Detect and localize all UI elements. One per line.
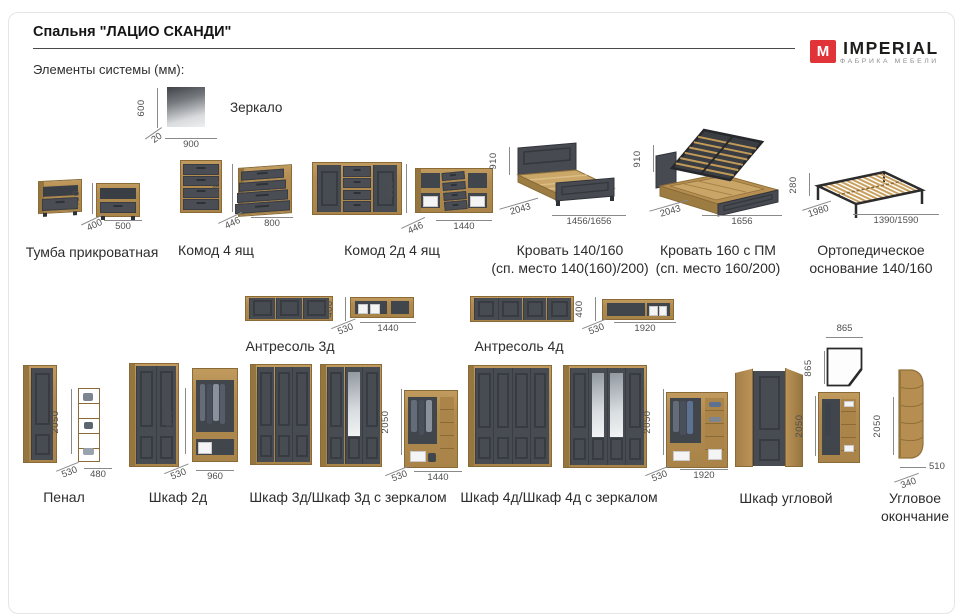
dim-height: 280 [784, 173, 810, 196]
dim-plan-width: 865 [826, 335, 863, 349]
clothes [213, 384, 218, 421]
clothes [825, 403, 831, 436]
dim-height: 2050 [790, 396, 816, 456]
drawer [444, 200, 467, 210]
wardrobe3-open-illustration [404, 390, 458, 468]
storage-box [370, 304, 380, 314]
item-label-line1: Угловое [889, 490, 941, 506]
clothes [200, 384, 205, 421]
niche [607, 303, 646, 317]
imperial-logo-mark-icon: M [810, 40, 836, 63]
item-label: Комод 2д 4 ящ [310, 241, 474, 259]
storage-box [844, 445, 854, 452]
dim-width: 1456/1656 [552, 213, 626, 227]
storage-box [470, 196, 485, 207]
clothes [680, 401, 686, 435]
dim-height: 910 [484, 147, 510, 175]
mirror-door [588, 368, 606, 465]
item-label: Ортопедическое основание 140/160 [788, 241, 954, 277]
corner-end-illustration [898, 369, 924, 459]
dim-height: 2050 [160, 388, 186, 454]
chest4-open-illustration [238, 164, 292, 217]
dim-height: 2050 [376, 389, 402, 455]
shelf-item [83, 448, 94, 454]
door [530, 368, 548, 464]
mirror-illustration [167, 87, 205, 127]
item-label-line2: (сп. место 140(160)/200) [487, 259, 653, 277]
wardrobe4-closed-illustration [468, 365, 552, 467]
door [475, 368, 493, 464]
shelf-item [709, 402, 721, 407]
clothes [687, 401, 693, 434]
door [275, 367, 292, 462]
dim-width: 480 [84, 466, 112, 480]
dim-width: 1440 [436, 218, 492, 232]
drawer [443, 190, 466, 200]
clothes [419, 400, 425, 435]
item-label: Пенал [5, 488, 123, 506]
dim-height: 830 [207, 164, 233, 212]
dim-height: 400 [570, 297, 596, 321]
door [327, 367, 344, 464]
dim-width: 1440 [414, 469, 462, 483]
logo-tagline: ФАБРИКА МЕБЕЛИ [840, 58, 939, 65]
drawer-stack [441, 170, 467, 211]
title-divider [33, 48, 795, 49]
clothes [426, 400, 432, 432]
clothes [411, 400, 417, 432]
catalog-page: Спальня "ЛАЦИО СКАНДИ" M IMPERIAL ФАБРИК… [0, 0, 963, 557]
door [493, 368, 511, 464]
dim-width: 960 [196, 468, 234, 482]
drawer [343, 166, 371, 176]
drawer [441, 171, 464, 181]
wardrobe4-open-illustration [666, 392, 728, 468]
door [547, 298, 571, 320]
niche [421, 173, 439, 188]
item-label-line1: Кровать 160 с ПМ [660, 242, 776, 258]
shelf-item [709, 417, 721, 422]
item-label: Шкаф 3д/Шкаф 3д с зеркалом [233, 488, 463, 506]
dim-width: 1920 [680, 467, 728, 481]
dim-width: 1920 [614, 320, 676, 334]
dim-width: 1656 [702, 213, 782, 227]
page-title: Спальня "ЛАЦИО СКАНДИ" [33, 24, 231, 40]
door [317, 165, 342, 212]
dim-plan-depth: 865 [799, 351, 825, 384]
niche [468, 173, 486, 188]
clothes [220, 384, 225, 424]
corner-wardrobe-plan-view [826, 347, 863, 387]
niche [391, 301, 410, 315]
clothes [673, 401, 679, 432]
item-label: Зеркало [230, 100, 282, 115]
dim-height: 2050 [638, 389, 664, 455]
shelf-column [440, 397, 454, 461]
storage-box [198, 442, 212, 454]
item-label: Шкаф угловой [706, 489, 866, 507]
drawer [343, 201, 371, 211]
drawer [235, 201, 290, 214]
mirror-door [345, 367, 362, 464]
door [136, 366, 156, 464]
storage-box [659, 306, 667, 316]
storage-box [649, 306, 657, 316]
antresol4-open-illustration [602, 299, 674, 320]
dim-width: 1390/1590 [853, 212, 939, 226]
item-label: Антресоль 3д [215, 337, 365, 355]
leg [43, 213, 47, 217]
door [276, 298, 303, 319]
door [498, 298, 522, 320]
dim-width: 900 [165, 136, 217, 150]
door [512, 368, 530, 464]
door [570, 368, 588, 465]
dim-height: 400 [320, 297, 346, 321]
mirror-door [607, 368, 625, 465]
dim-height: 2050 [46, 389, 72, 454]
storage-box [358, 304, 368, 314]
drawer [343, 178, 371, 188]
item-label: Комод 4 ящ [150, 241, 282, 259]
logo-text-block: IMPERIAL ФАБРИКА МЕБЕЛИ [840, 40, 939, 65]
dim-width: 1440 [360, 320, 416, 334]
door [249, 298, 276, 319]
chest2d4-open-illustration [415, 168, 493, 213]
shelf-item [844, 401, 854, 407]
imperial-logo: M IMPERIAL ФАБРИКА МЕБЕЛИ [810, 40, 939, 65]
storage-box [708, 449, 721, 461]
storage-box [673, 451, 690, 461]
wardrobe4-mirror-illustration [563, 365, 647, 468]
antresol3-open-illustration [350, 297, 414, 318]
door [292, 367, 309, 462]
dim-width: 500 [104, 218, 142, 232]
shelf-item [83, 393, 93, 400]
wardrobe3-mirror-illustration [320, 364, 382, 467]
dim-width: 800 [251, 215, 293, 229]
storage-box [410, 451, 426, 462]
drawer [100, 202, 137, 214]
logo-brand: IMPERIAL [843, 40, 939, 57]
wardrobe2-open-illustration [192, 368, 238, 462]
door [523, 298, 547, 320]
item-label: Антресоль 4д [444, 337, 594, 355]
item-label: Шкаф 4д/Шкаф 4д с зеркалом [443, 488, 675, 506]
shelf-item [84, 422, 93, 428]
item-label-line2: окончание [856, 507, 963, 525]
wardrobe3-closed-illustration [250, 364, 312, 465]
storage-box [428, 453, 436, 462]
item-label: Тумба прикроватная [12, 243, 172, 261]
drawer [442, 180, 465, 190]
item-label-line2: (сп. место 160/200) [638, 259, 798, 277]
side-panel [735, 368, 753, 467]
niche [100, 188, 135, 199]
corner-wardrobe-open-illustration [818, 392, 860, 463]
item-label-line1: Ортопедическое [817, 242, 924, 258]
item-label-line2: основание 140/160 [788, 259, 954, 277]
dim-height: 830 [381, 164, 407, 213]
item-label: Кровать 160 с ПМ (сп. место 160/200) [638, 241, 798, 277]
antresol4-closed-illustration [470, 296, 574, 322]
dim-height: 600 [132, 88, 158, 128]
section-subtitle: Элементы системы (мм): [33, 62, 184, 77]
dim-height: 2050 [868, 397, 894, 455]
nightstand-illustration [96, 183, 140, 217]
drawer [343, 190, 371, 200]
item-label-line1: Кровать 140/160 [517, 242, 624, 258]
storage-box [423, 196, 438, 207]
door [257, 367, 274, 462]
item-label: Шкаф 2д [118, 488, 238, 506]
item-label: Кровать 140/160 (сп. место 140(160)/200) [487, 241, 653, 277]
door [474, 298, 498, 320]
clothes [207, 384, 212, 424]
item-label: Угловое окончание [856, 489, 963, 525]
dim-height: 910 [628, 145, 654, 172]
door [753, 371, 784, 466]
dim-height: 430 [67, 183, 93, 214]
penal-open-illustration [78, 388, 100, 462]
